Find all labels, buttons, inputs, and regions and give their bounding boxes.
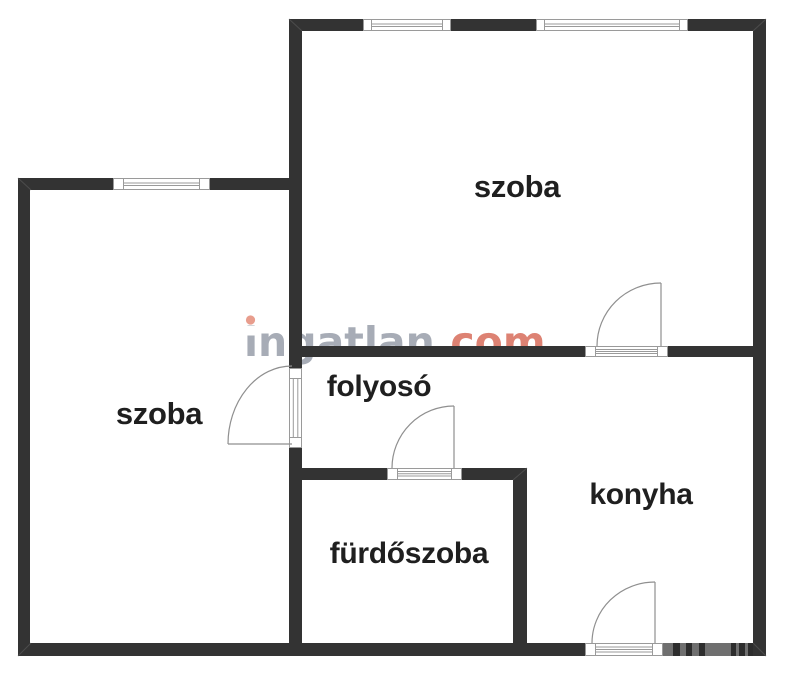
- wall-bar-icon: [748, 643, 753, 656]
- room-labels: szoba szoba folyosó konyha fürdőszoba: [116, 169, 693, 570]
- door-toproom-icon: [586, 283, 668, 357]
- window-toproom-left-icon: [364, 20, 451, 31]
- floor-plan-svg: ingatlan.com: [0, 0, 786, 675]
- floor-plan: ingatlan.com: [0, 0, 786, 675]
- wall-bar-icon: [731, 643, 736, 656]
- wall-bar-icon: [673, 643, 680, 656]
- wall-top-seg2: [451, 19, 536, 31]
- watermark: ingatlan.com: [243, 315, 546, 366]
- wall-bath-right: [513, 468, 527, 656]
- room-label-folyoso: folyosó: [327, 370, 432, 403]
- windows: [114, 20, 688, 190]
- wall-watermark-artifact: [663, 643, 753, 656]
- wall-hall-top-seg2: [668, 346, 753, 357]
- wall-bar-icon: [686, 643, 692, 656]
- wall-bar-icon: [739, 643, 745, 656]
- wall-bath-top-seg1: [302, 468, 387, 480]
- watermark-gray-part: ingatlan: [244, 318, 435, 366]
- wall-leftroom-top-seg2: [210, 178, 302, 190]
- room-label-szoba-left: szoba: [116, 396, 203, 431]
- wall-right: [753, 19, 766, 656]
- wall-leftroom-top-seg1: [18, 178, 113, 190]
- window-toproom-right-icon: [537, 20, 688, 31]
- door-kitchen-icon: [586, 582, 663, 656]
- window-leftroom-icon: [114, 179, 210, 190]
- watermark-i-dot-mask: [243, 326, 255, 336]
- wall-left: [18, 178, 30, 656]
- wall-hall-top-seg1: [302, 346, 585, 357]
- watermark-i-dot-icon: [246, 315, 255, 324]
- wall-center-vert-upper: [289, 19, 302, 368]
- wall-center-vert-lower: [289, 448, 302, 656]
- watermark-red-part: .com: [435, 318, 546, 366]
- wall-bar-icon: [699, 643, 705, 656]
- room-label-konyha: konyha: [589, 478, 693, 511]
- door-bathroom-icon: [388, 406, 462, 480]
- room-label-furdoszoba: fürdőszoba: [330, 537, 489, 570]
- room-label-szoba-top: szoba: [474, 169, 561, 204]
- door-leftroom-icon: [228, 366, 302, 448]
